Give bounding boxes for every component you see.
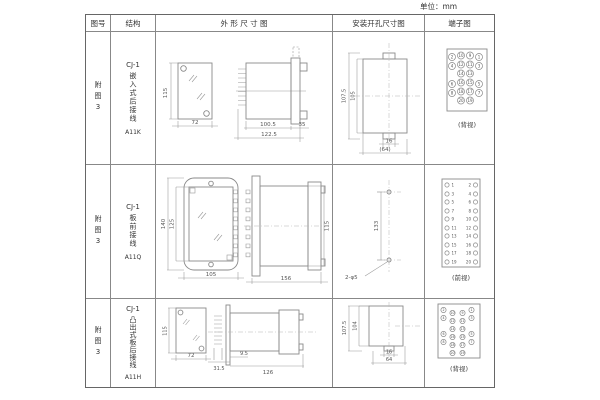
terminal-number: 12: [450, 319, 454, 323]
terminal-number: 2: [450, 54, 453, 59]
terminal-number: 18: [458, 88, 464, 93]
terminal-number: 17: [460, 343, 464, 347]
row3-side-view: [208, 305, 316, 365]
header-fig: 图号: [86, 15, 111, 32]
row1-outline-diagram: 115 72 100.5 35 122.5: [156, 33, 332, 164]
row3-front-view: [176, 308, 206, 353]
terminal-number: 17: [467, 88, 473, 93]
dim-outer-height: 107.5: [342, 321, 348, 335]
terminal-number: 20: [465, 259, 471, 264]
terminal-number: 20: [458, 97, 464, 102]
terminal-number: 9: [468, 52, 471, 57]
dim-inner-height: 104: [353, 321, 359, 331]
terminal-number: 5: [477, 81, 480, 86]
row2-outline-diagram: 140 125 105 156 115: [156, 166, 332, 298]
terminal-number: 17: [451, 250, 457, 255]
terminal-number: 7: [451, 208, 454, 213]
row2-structure-cell: CJ-1 板前接线 A11Q: [111, 165, 156, 299]
terminal-number: 16: [450, 335, 454, 339]
row3-model: CJ-1: [126, 305, 140, 313]
row3-structure-cell: CJ-1 凸出式板后接线 A11H: [111, 299, 156, 387]
row3-outline-diagram: 115 72 9.5 31.5 126: [156, 300, 332, 386]
dim-inner-height: 105: [351, 91, 357, 101]
row1-model: CJ-1: [126, 61, 140, 69]
row2-mount-type: 板前接线: [128, 214, 138, 248]
terminal-number: 10: [465, 216, 471, 221]
row1-terminal-cell: 2 10 9 1 4 12 11 3 14 13 6 16 15 5 8 18: [425, 32, 494, 165]
row2-model: CJ-1: [126, 203, 140, 211]
dim-side-height: 115: [325, 220, 331, 231]
row3-mount-cell: 107.5 104 16 64: [333, 299, 425, 387]
row1-mount-dimensions: 107.5 105 16 (64): [342, 53, 412, 155]
terminal-number: 15: [451, 242, 457, 247]
terminal-number: 18: [450, 343, 454, 347]
terminal-number: 14: [458, 70, 464, 75]
terminal-number: 11: [467, 61, 473, 66]
terminal-number: 6: [450, 81, 453, 86]
row3-cutout-shape: [369, 306, 403, 351]
terminal-number: 13: [467, 70, 473, 75]
row2-side-view: [244, 176, 328, 276]
terminal-number: 8: [442, 340, 444, 344]
row1-code: A11K: [125, 129, 141, 136]
dim-body-length: 100.5: [260, 122, 276, 128]
terminal-number: 15: [467, 79, 473, 84]
row1-mount-cell: 107.5 105 16 (64): [333, 32, 425, 165]
dim-front-height: 115: [163, 87, 169, 98]
unit-label: 单位：mm: [420, 1, 457, 12]
row2-figure-cell: 附图3: [86, 165, 111, 299]
terminal-number: 1: [477, 54, 480, 59]
row1-front-view: [178, 63, 212, 119]
row3-mount-diagram: 107.5 104 16 64: [333, 300, 424, 386]
terminal-number: 11: [460, 319, 464, 323]
header-terminal: 端子图: [425, 15, 494, 32]
row2-mount-diagram: 133 2-φ5: [333, 166, 424, 298]
row3-mount-dimensions: 107.5 104 16 64: [342, 306, 407, 365]
row3-terminal-cell: 2 10 9 1 4 12 11 3 14 13 6 16 15 5 8 18: [425, 299, 494, 387]
terminal-number: 14: [465, 233, 471, 238]
dim-width-small: 16: [386, 350, 392, 356]
row1-figure-number: 附图3: [93, 81, 103, 115]
terminal-number: 5: [470, 332, 472, 336]
terminal-number: 3: [470, 316, 472, 320]
row1-centerlines: [355, 43, 421, 153]
terminal-number: 11: [451, 225, 457, 230]
terminal-number: 19: [460, 351, 464, 355]
terminal-number: 8: [468, 208, 471, 213]
terminal-number: 19: [467, 97, 473, 102]
row2-terminal-grid: 1 2 3 4 5 6 7 8 9 10 11 12 13 14 15 16 1: [444, 182, 477, 264]
terminal-number: 8: [450, 90, 453, 95]
row2-outline-cell: 140 125 105 156 115: [156, 165, 333, 299]
terminal-number: 5: [451, 199, 454, 204]
terminal-number: 15: [460, 335, 464, 339]
dim-fin-length: 31.5: [213, 366, 224, 372]
terminal-number: 3: [477, 63, 480, 68]
dim-front-height: 115: [163, 326, 169, 336]
terminal-number: 14: [450, 327, 454, 331]
terminal-number: 10: [458, 52, 464, 57]
row2-code: A11Q: [125, 254, 141, 261]
manual-page: 单位：mm 图号 结构 外 形 尺 寸 图 安装开孔尺寸图 端子图 附图3 CJ…: [0, 0, 600, 400]
row1-outline-dimensions: 115 72 100.5 35 122.5: [163, 63, 309, 142]
row2-terminal-diagram: 1 2 3 4 5 6 7 8 9 10 11 12 13 14 15 16 1: [426, 166, 494, 298]
dim-front-width: 105: [206, 272, 217, 278]
dim-total-length: 122.5: [261, 132, 277, 138]
row3-view-label: (背视): [449, 364, 467, 373]
header-outline-label: 外 形 尺 寸 图: [220, 18, 267, 29]
dim-side-length: 156: [281, 276, 292, 282]
row1-figure-cell: 附图3: [86, 32, 111, 165]
dimension-table: 图号 结构 外 形 尺 寸 图 安装开孔尺寸图 端子图 附图3 CJ-1 嵌入式…: [85, 14, 495, 388]
row2-terminal-cell: 1 2 3 4 5 6 7 8 9 10 11 12 13 14 15 16 1: [425, 165, 494, 299]
row3-terminal-diagram: 2 10 9 1 4 12 11 3 14 13 6 16 15 5 8 18: [426, 300, 494, 386]
terminal-number: 7: [470, 340, 472, 344]
terminal-number: 1: [470, 308, 472, 312]
row1-mount-type: 嵌入式后接线: [128, 72, 138, 123]
row1-view-label: (背视): [457, 120, 475, 129]
row1-outline-cell: 115 72 100.5 35 122.5: [156, 32, 333, 165]
dim-hole-spec: 2-φ5: [345, 275, 358, 281]
terminal-number: 9: [451, 216, 454, 221]
terminal-number: 6: [468, 199, 471, 204]
header-terminal-label: 端子图: [448, 18, 471, 29]
row3-figure-number: 附图3: [93, 326, 103, 360]
dim-front-width: 72: [192, 120, 199, 126]
row2-figure-number: 附图3: [93, 215, 103, 249]
terminal-number: 13: [451, 233, 457, 238]
dim-hole-pitch: 133: [374, 220, 380, 231]
terminal-number: 3: [451, 191, 454, 196]
row3-mount-type: 凸出式板后接线: [128, 316, 138, 369]
header-mount: 安装开孔尺寸图: [333, 15, 425, 32]
terminal-number: 13: [460, 327, 464, 331]
row1-terminal-grid: 2 10 9 1 4 12 11 3 14 13 6 16 15 5 8 18: [448, 52, 482, 104]
row3-code: A11H: [125, 374, 141, 381]
row3-outline-cell: 115 72 9.5 31.5 126: [156, 299, 333, 387]
header-fig-label: 图号: [91, 18, 106, 29]
dim-front-width: 72: [188, 353, 195, 359]
dim-width-large: (64): [379, 147, 390, 153]
dim-offset: 9.5: [240, 351, 248, 357]
dim-width-large: 64: [386, 357, 392, 363]
header-mount-label: 安装开孔尺寸图: [352, 18, 405, 29]
terminal-number: 12: [458, 61, 464, 66]
row2-mount-dimensions: 133 2-φ5: [345, 192, 387, 281]
row1-terminal-diagram: 2 10 9 1 4 12 11 3 14 13 6 16 15 5 8 18: [426, 33, 494, 164]
row3-terminal-grid: 2 10 9 1 4 12 11 3 14 13 6 16 15 5 8 18: [440, 307, 473, 355]
terminal-number: 16: [465, 242, 471, 247]
dim-front-height: 140: [161, 218, 167, 229]
terminal-number: 4: [450, 63, 453, 68]
dim-flange-length: 35: [299, 122, 306, 128]
terminal-number: 18: [465, 250, 471, 255]
row3-outline-dimensions: 115 72 9.5 31.5 126: [163, 308, 305, 376]
terminal-number: 9: [461, 311, 463, 315]
terminal-number: 1: [451, 182, 454, 187]
terminal-number: 2: [442, 308, 444, 312]
terminal-number: 16: [458, 79, 464, 84]
terminal-number: 6: [442, 332, 444, 336]
row1-mount-diagram: 107.5 105 16 (64): [333, 33, 424, 164]
terminal-number: 20: [450, 351, 454, 355]
terminal-number: 10: [450, 311, 454, 315]
row2-front-view: [184, 178, 238, 270]
dim-width-small: 16: [386, 138, 393, 144]
row1-side-view: [236, 47, 307, 124]
terminal-number: 4: [442, 316, 444, 320]
terminal-number: 19: [451, 259, 457, 264]
terminal-number: 12: [465, 225, 471, 230]
dim-inner-height: 125: [170, 218, 176, 229]
row1-structure-cell: CJ-1 嵌入式后接线 A11K: [111, 32, 156, 165]
terminal-number: 2: [468, 182, 471, 187]
header-outline: 外 形 尺 寸 图: [156, 15, 333, 32]
row2-view-label: (前视): [451, 273, 469, 282]
row3-figure-cell: 附图3: [86, 299, 111, 387]
terminal-number: 7: [477, 90, 480, 95]
row2-mount-cell: 133 2-φ5: [333, 165, 425, 299]
header-struct-label: 结构: [126, 18, 141, 29]
header-struct: 结构: [111, 15, 156, 32]
dim-outer-height: 107.5: [342, 88, 348, 102]
dim-body-length: 126: [263, 370, 274, 376]
terminal-number: 4: [468, 191, 471, 196]
